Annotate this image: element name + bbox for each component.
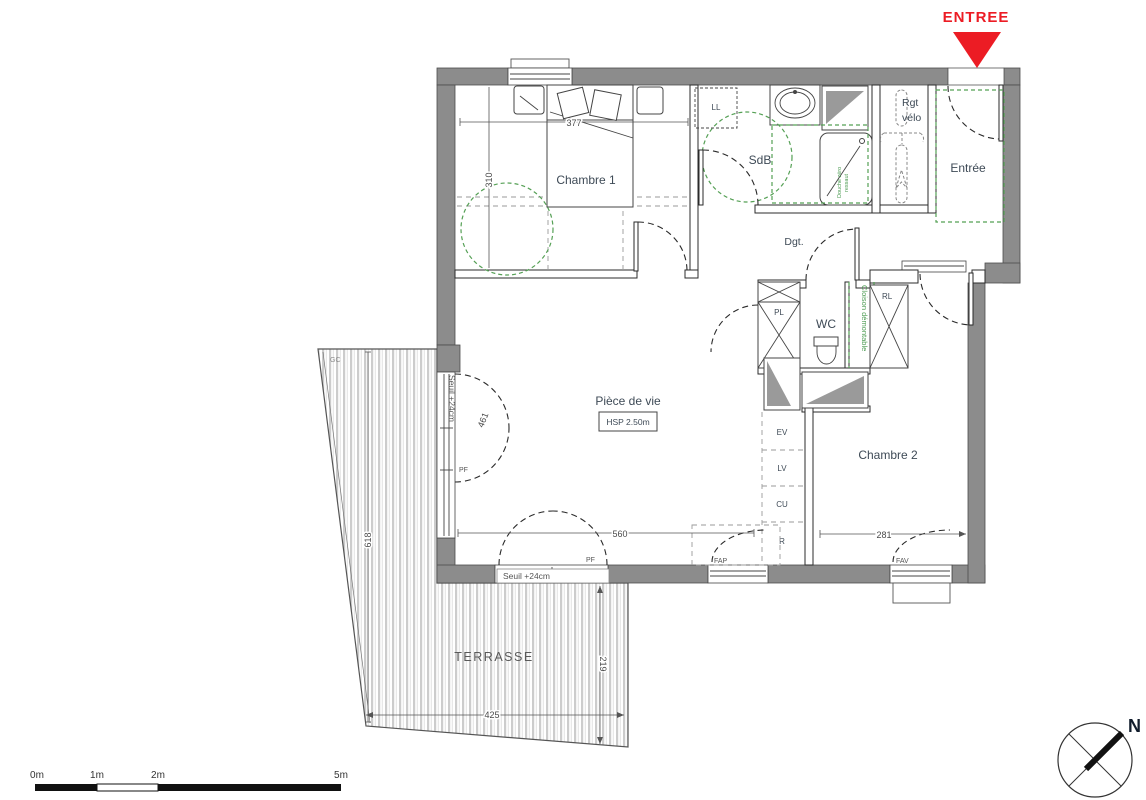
floor-plan-page: TERRASSE GC 618 425 219 [0, 0, 1146, 800]
wall-top-right [1004, 68, 1020, 85]
seuil-left-label: Seuil +24cm [447, 375, 457, 422]
tag-fav: FAV [896, 558, 909, 565]
douche-note-2: ressaut [844, 173, 850, 192]
rgt-velo-label-2: vélo [902, 112, 921, 124]
sdb-label: SdB [749, 153, 772, 167]
dim-377: 377 [566, 118, 581, 128]
wc-block: PL WC Cloison démontable RL [758, 282, 908, 368]
chambre1-door-leaf [634, 222, 638, 271]
scale-bar: 0m 1m 2m 5m [30, 770, 348, 791]
wc-door-arc [806, 229, 857, 280]
scale-2m: 2m [151, 770, 165, 781]
hsp-label: HSP 2.50m [606, 417, 649, 427]
turning-circle-sdb [702, 112, 792, 202]
wc-label: WC [816, 317, 836, 331]
doors [455, 85, 1003, 565]
dgt-label: Dgt. [784, 236, 803, 248]
pillow-left [557, 87, 589, 119]
window-chambre1 [508, 59, 572, 85]
wall-right-jog [985, 263, 1020, 283]
partition-chambre1-living-a [455, 270, 637, 278]
tag-fap: FAP [714, 558, 728, 565]
dim-618: 618 [363, 532, 373, 547]
chambre2-door-arc [920, 274, 972, 325]
sdb-fixtures: LL Douche zéro ressaut [695, 85, 872, 205]
gc-label: GC [330, 357, 341, 364]
toilet [814, 337, 838, 364]
rgt-velo-label-1: Rgt [902, 97, 918, 109]
entree-marker-label: ENTREE [943, 9, 1010, 26]
kitchen-lv: LV [777, 464, 787, 473]
terrace-label: TERRASSE [454, 650, 533, 664]
partition-chambre1-living-b [685, 270, 698, 278]
wall-top-mid [572, 68, 948, 85]
cloison-label: Cloison démontable [860, 285, 869, 351]
closet-rl-label: RL [882, 292, 893, 301]
floor-plan-svg: TERRASSE GC 618 425 219 [0, 0, 1146, 800]
pf-door-arc-a [499, 511, 553, 565]
kitchen-ev: EV [777, 428, 788, 437]
wall-bottom-3 [768, 565, 890, 583]
chambre2-label: Chambre 2 [858, 448, 918, 462]
wc-door-leaf [855, 228, 859, 280]
partition-sdb-velo [872, 85, 880, 213]
wall-right-lower [968, 283, 985, 583]
closet-pl-label: PL [774, 308, 784, 317]
compass: N [1058, 716, 1141, 797]
dim-219: 219 [598, 656, 608, 671]
partition-sdb-dgt [755, 205, 936, 213]
window-fav: FAV [890, 558, 952, 603]
wall-left-upper [437, 85, 455, 345]
hsp-box: HSP 2.50m [599, 412, 657, 431]
wall-bottom-1 [437, 565, 495, 583]
tag-pf-bottom: PF [586, 557, 595, 564]
tag-pf-left: PF [459, 467, 468, 474]
dim-560: 560 [612, 529, 627, 539]
window-fap: FAP [708, 558, 768, 583]
nightstand-right [637, 87, 663, 114]
scale-1m: 1m [90, 770, 104, 781]
entree-arrow-icon [953, 32, 1001, 68]
washer-label: LL [712, 103, 721, 112]
north-label: N [1128, 716, 1141, 736]
entree-label: Entrée [950, 161, 986, 175]
closet-door-arc [711, 305, 758, 352]
kitchen-option-zone [692, 525, 780, 565]
entry-threshold [948, 68, 1004, 85]
chambre1-label: Chambre 1 [556, 173, 616, 187]
terrace: TERRASSE GC 618 425 219 [318, 349, 628, 747]
dim-461: 461 [476, 411, 491, 429]
seuil-bottom-label: Seuil +24cm [503, 571, 550, 581]
entry-door-leaf [999, 85, 1003, 141]
wall-bottom-2 [608, 565, 708, 583]
entry-marker: ENTREE [943, 9, 1010, 68]
scale-5m: 5m [334, 770, 348, 781]
douche-note-1: Douche zéro [837, 167, 843, 198]
north-needle [1086, 733, 1122, 769]
kitchen-cu: CU [776, 500, 788, 509]
partition-chambre1-sdb [690, 85, 698, 278]
nightstand-left [514, 86, 544, 114]
scale-0m: 0m [30, 770, 44, 781]
chambre2-door-leaf [969, 273, 973, 325]
seuil-labels: Seuil +24cm Seuil +24cm [447, 375, 609, 583]
partition-jog-a [870, 270, 918, 283]
wall-right-upper [1003, 85, 1020, 283]
partition-velo-entree [928, 85, 936, 213]
piece-de-vie-label: Pièce de vie [595, 394, 661, 408]
entry-door-arc [948, 86, 999, 139]
entree-access-zone [936, 90, 1004, 222]
wall-left-pillar [437, 345, 460, 372]
pf-door-arc-b [553, 511, 607, 565]
dim-281: 281 [876, 530, 891, 540]
sdb-door-leaf [699, 150, 703, 205]
partition-jog-b [972, 270, 985, 283]
chambre1-door-arc [638, 222, 687, 271]
wall-top-left [437, 68, 508, 85]
pillow-right [590, 90, 621, 121]
dim-425: 425 [484, 710, 499, 720]
dim-310: 310 [484, 172, 494, 187]
